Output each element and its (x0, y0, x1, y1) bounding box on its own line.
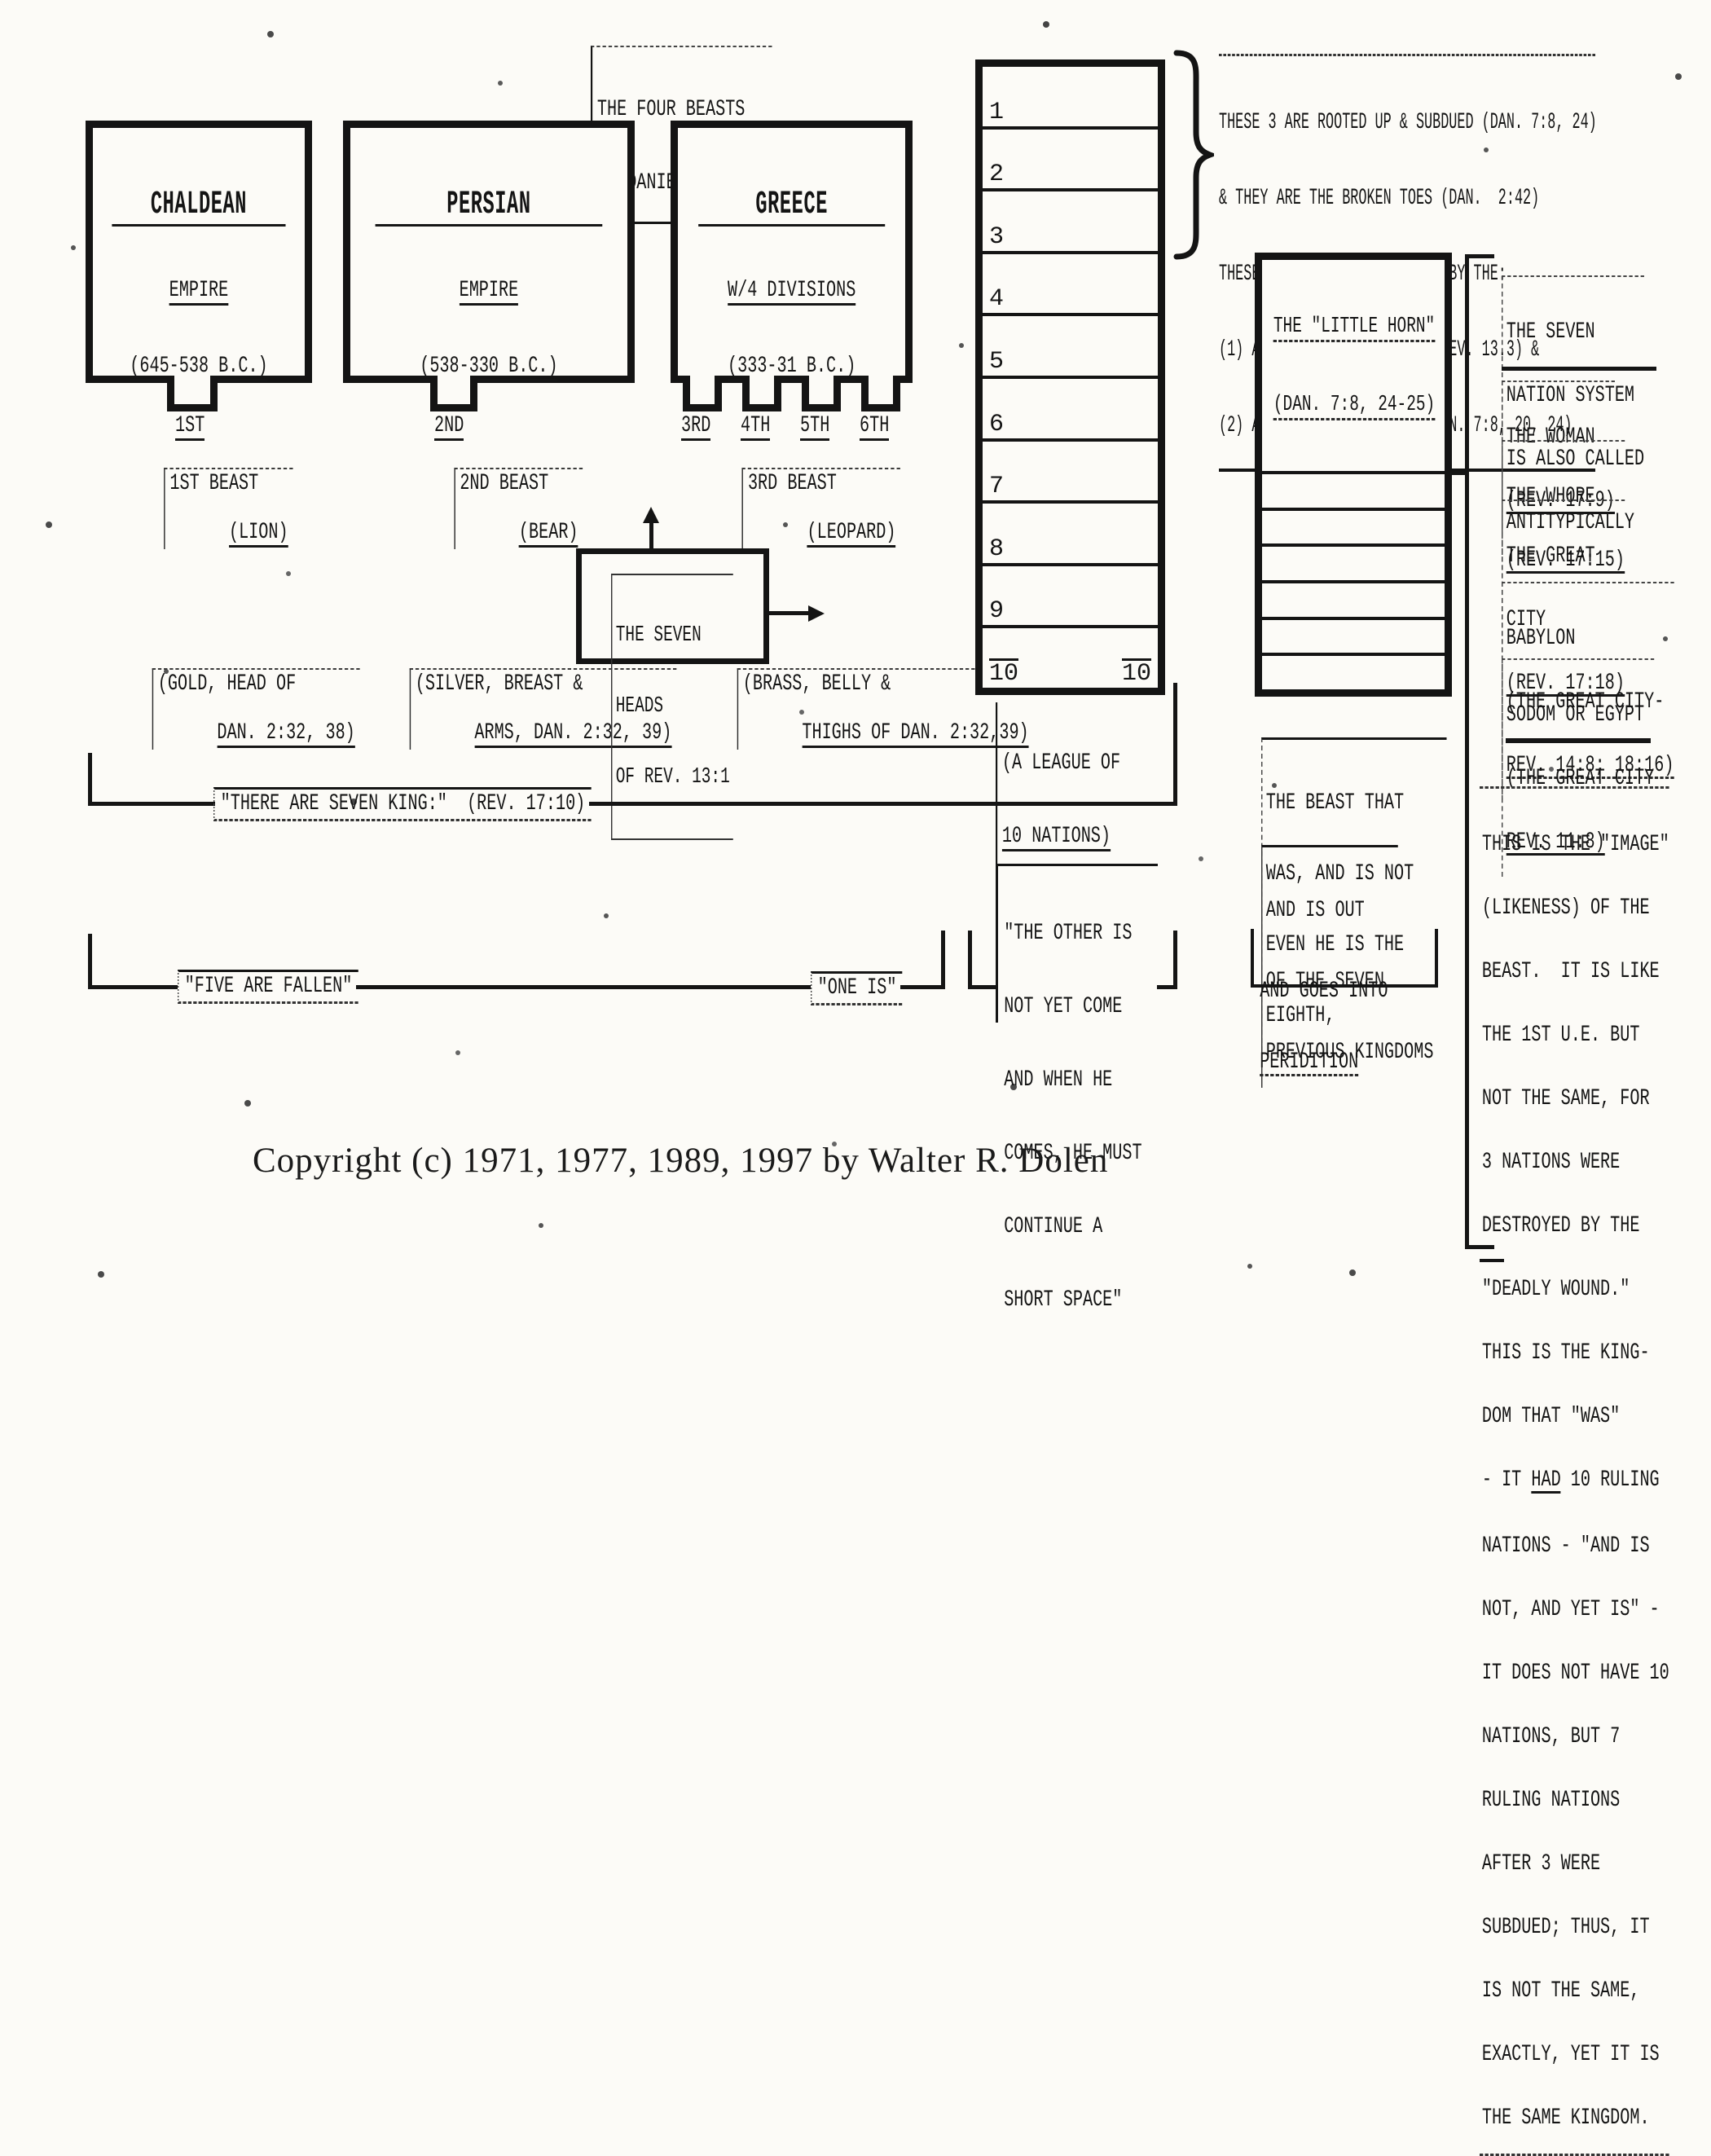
perdition-note: AND GOES INTO PERIDITION (1254, 929, 1384, 1124)
little-horn-connector-line (1450, 471, 1465, 475)
right-bracket-line (1465, 254, 1469, 1249)
scan-specks (0, 0, 3, 3)
note-line: THESE 3 ARE ROOTED UP & SUBDUED (DAN. 7:… (1219, 110, 1595, 135)
quote-right-bracket-leg (1173, 931, 1177, 989)
metal-note: (GOLD, HEAD OF DAN. 2:32, 38) (152, 668, 360, 750)
ten-nations-row: 2 (983, 126, 1158, 189)
ten-nations-row: 7 (983, 438, 1158, 501)
perdition-bracket: AND GOES INTO PERIDITION (1251, 929, 1438, 988)
empire-box-greece: GREECE W/4 DIVISIONS (333-31 B.C.) 3RD B… (671, 121, 913, 383)
little-horn-title: THE "LITTLE HORN" (DAN. 7:8, 24-25) (1262, 260, 1446, 471)
kings-line-right-leg (1173, 683, 1177, 806)
row-number: 4 (989, 286, 1004, 312)
row-number: 5 (989, 349, 1004, 375)
right-arrow-stem (769, 611, 810, 615)
row-number: 6 (989, 411, 1004, 438)
row-number: 3 (989, 224, 1004, 250)
row-number: 2 (989, 161, 1004, 187)
empire-box-persian: PERSIAN EMPIRE (538-330 B.C.) 2ND BEAST … (343, 121, 635, 383)
curly-brace-icon (1172, 49, 1214, 261)
kings-line-left-leg (88, 753, 92, 806)
empire-subtitle: EMPIRE (460, 279, 519, 306)
ten-nations-row: 5 (983, 313, 1158, 376)
foot-label: 1ST (175, 414, 205, 441)
little-horn-row (1262, 653, 1445, 689)
had-line: - IT HAD 10 RULING (1482, 1470, 1669, 1494)
foot-tab (683, 376, 722, 411)
league-caption: (A LEAGUE OF 10 NATIONS) (996, 702, 1120, 876)
little-horn-row (1262, 580, 1445, 617)
kings-line-seg2 (589, 802, 1177, 806)
little-horn-table: THE "LITTLE HORN" (DAN. 7:8, 24-25) (1255, 253, 1452, 697)
one-is-label: "ONE IS" (811, 971, 903, 1005)
little-horn-row (1262, 471, 1445, 508)
scanned-diagram-page: { "four_beasts_label": {"line1": "THE FO… (0, 0, 1711, 1304)
little-horn-row (1262, 543, 1445, 580)
ten-nations-row: 4 (983, 251, 1158, 314)
beast-note: 3RD BEAST (LEOPARD) (742, 468, 900, 549)
end-dash (1480, 1259, 1504, 1262)
up-arrow-stem (649, 521, 653, 551)
foot-tab (802, 376, 841, 411)
ten-nations-table: 1 2 3 4 5 6 7 8 9 1010 (975, 59, 1165, 695)
quote-left-bracket-leg (968, 931, 972, 989)
kings-label: "THERE ARE SEVEN KING:" (REV. 17:10) (213, 787, 591, 821)
empire-subtitle: W/4 DIVISIONS (728, 279, 855, 306)
foot-tab (430, 376, 477, 411)
foot-tab (742, 376, 781, 411)
little-horn-row (1262, 508, 1445, 544)
kings-line-seg1 (88, 802, 215, 806)
right-bracket-top-tick (1465, 254, 1494, 258)
foot-label: 5TH (800, 414, 829, 441)
foot-label: 2ND (434, 414, 464, 441)
row-number: 9 (989, 598, 1004, 624)
divider-rule (1506, 738, 1651, 743)
other-quote-box: "THE OTHER IS NOT YET COME AND WHEN HE C… (996, 864, 1158, 1023)
intro-underline-rule (1502, 367, 1656, 371)
fallen-line-seg1 (88, 985, 178, 989)
beast-note: 2ND BEAST (BEAR) (454, 468, 583, 549)
empire-title: PERSIAN (376, 187, 603, 227)
fallen-line-seg3 (900, 985, 945, 989)
image-note: THIS IS THE "IMAGE" (LIKENESS) OF THE BE… (1480, 786, 1669, 2156)
ten-nations-row: 8 (983, 500, 1158, 563)
foot-label: 6TH (860, 414, 889, 441)
right-arrow-icon (808, 605, 825, 622)
fallen-line-left-leg (88, 934, 92, 989)
seven-heads-label: THE SEVEN HEADS OF REV. 13:1 (611, 574, 733, 840)
row-number-right: 10 (1122, 658, 1151, 687)
foot-label: 4TH (741, 414, 770, 441)
fallen-line-seg2 (356, 985, 811, 989)
empire-subtitle: EMPIRE (169, 279, 229, 306)
four-beasts-line1: THE FOUR BEASTS (597, 98, 768, 122)
fallen-label: "FIVE ARE FALLEN" (178, 970, 358, 1004)
quote-right-bracket-foot (1157, 985, 1177, 989)
empire-box-chaldean: CHALDEAN EMPIRE (645-538 B.C.) 1ST BEAST… (86, 121, 312, 383)
note-line: & THEY ARE THE BROKEN TOES (DAN. 2:42) (1219, 186, 1595, 211)
foot-tab (167, 376, 218, 411)
ten-nations-row: 6 (983, 376, 1158, 438)
row-number: 1 (989, 99, 1004, 125)
foot-label: 3RD (681, 414, 710, 441)
foot-tab (861, 376, 900, 411)
empire-title: GREECE (698, 187, 885, 227)
ten-nations-row: 3 (983, 188, 1158, 251)
empire-title: CHALDEAN (112, 187, 285, 227)
fallen-line-end-hook (941, 931, 945, 989)
ten-nations-row: 1010 (983, 625, 1158, 688)
row-number: 10 (989, 658, 1018, 687)
beast-note: 1ST BEAST (LION) (164, 468, 292, 549)
quote-left-bracket-foot (968, 985, 997, 989)
row-number: 8 (989, 536, 1004, 562)
other-quote-text: "THE OTHER IS NOT YET COME AND WHEN HE C… (998, 866, 1113, 1362)
ten-nations-row: 9 (983, 563, 1158, 626)
row-number: 7 (989, 473, 1004, 499)
ten-nations-row: 1 (983, 67, 1158, 126)
copyright-text: Copyright (c) 1971, 1977, 1989, 1997 by … (253, 1141, 1108, 1181)
seven-heads-box: THE SEVEN HEADS OF REV. 13:1 (576, 548, 769, 664)
little-horn-title-cell: THE "LITTLE HORN" (DAN. 7:8, 24-25) (1262, 260, 1445, 471)
little-horn-row (1262, 617, 1445, 653)
up-arrow-icon (643, 507, 659, 523)
